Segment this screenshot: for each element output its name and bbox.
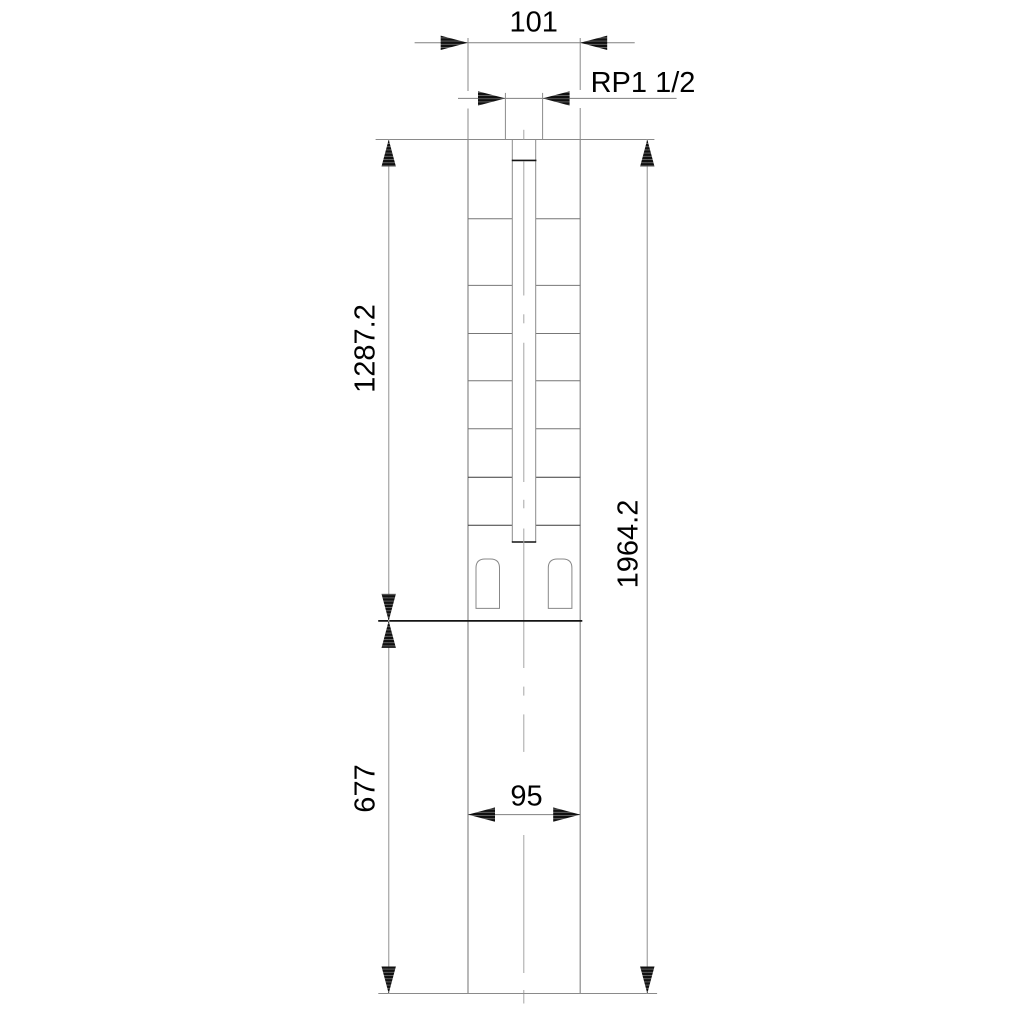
svg-text:RP1 1/2: RP1 1/2: [591, 67, 696, 99]
svg-text:95: 95: [510, 781, 542, 813]
svg-text:101: 101: [510, 7, 558, 39]
svg-text:1287.2: 1287.2: [349, 304, 381, 393]
svg-text:677: 677: [349, 764, 381, 812]
svg-text:1964.2: 1964.2: [613, 500, 645, 589]
